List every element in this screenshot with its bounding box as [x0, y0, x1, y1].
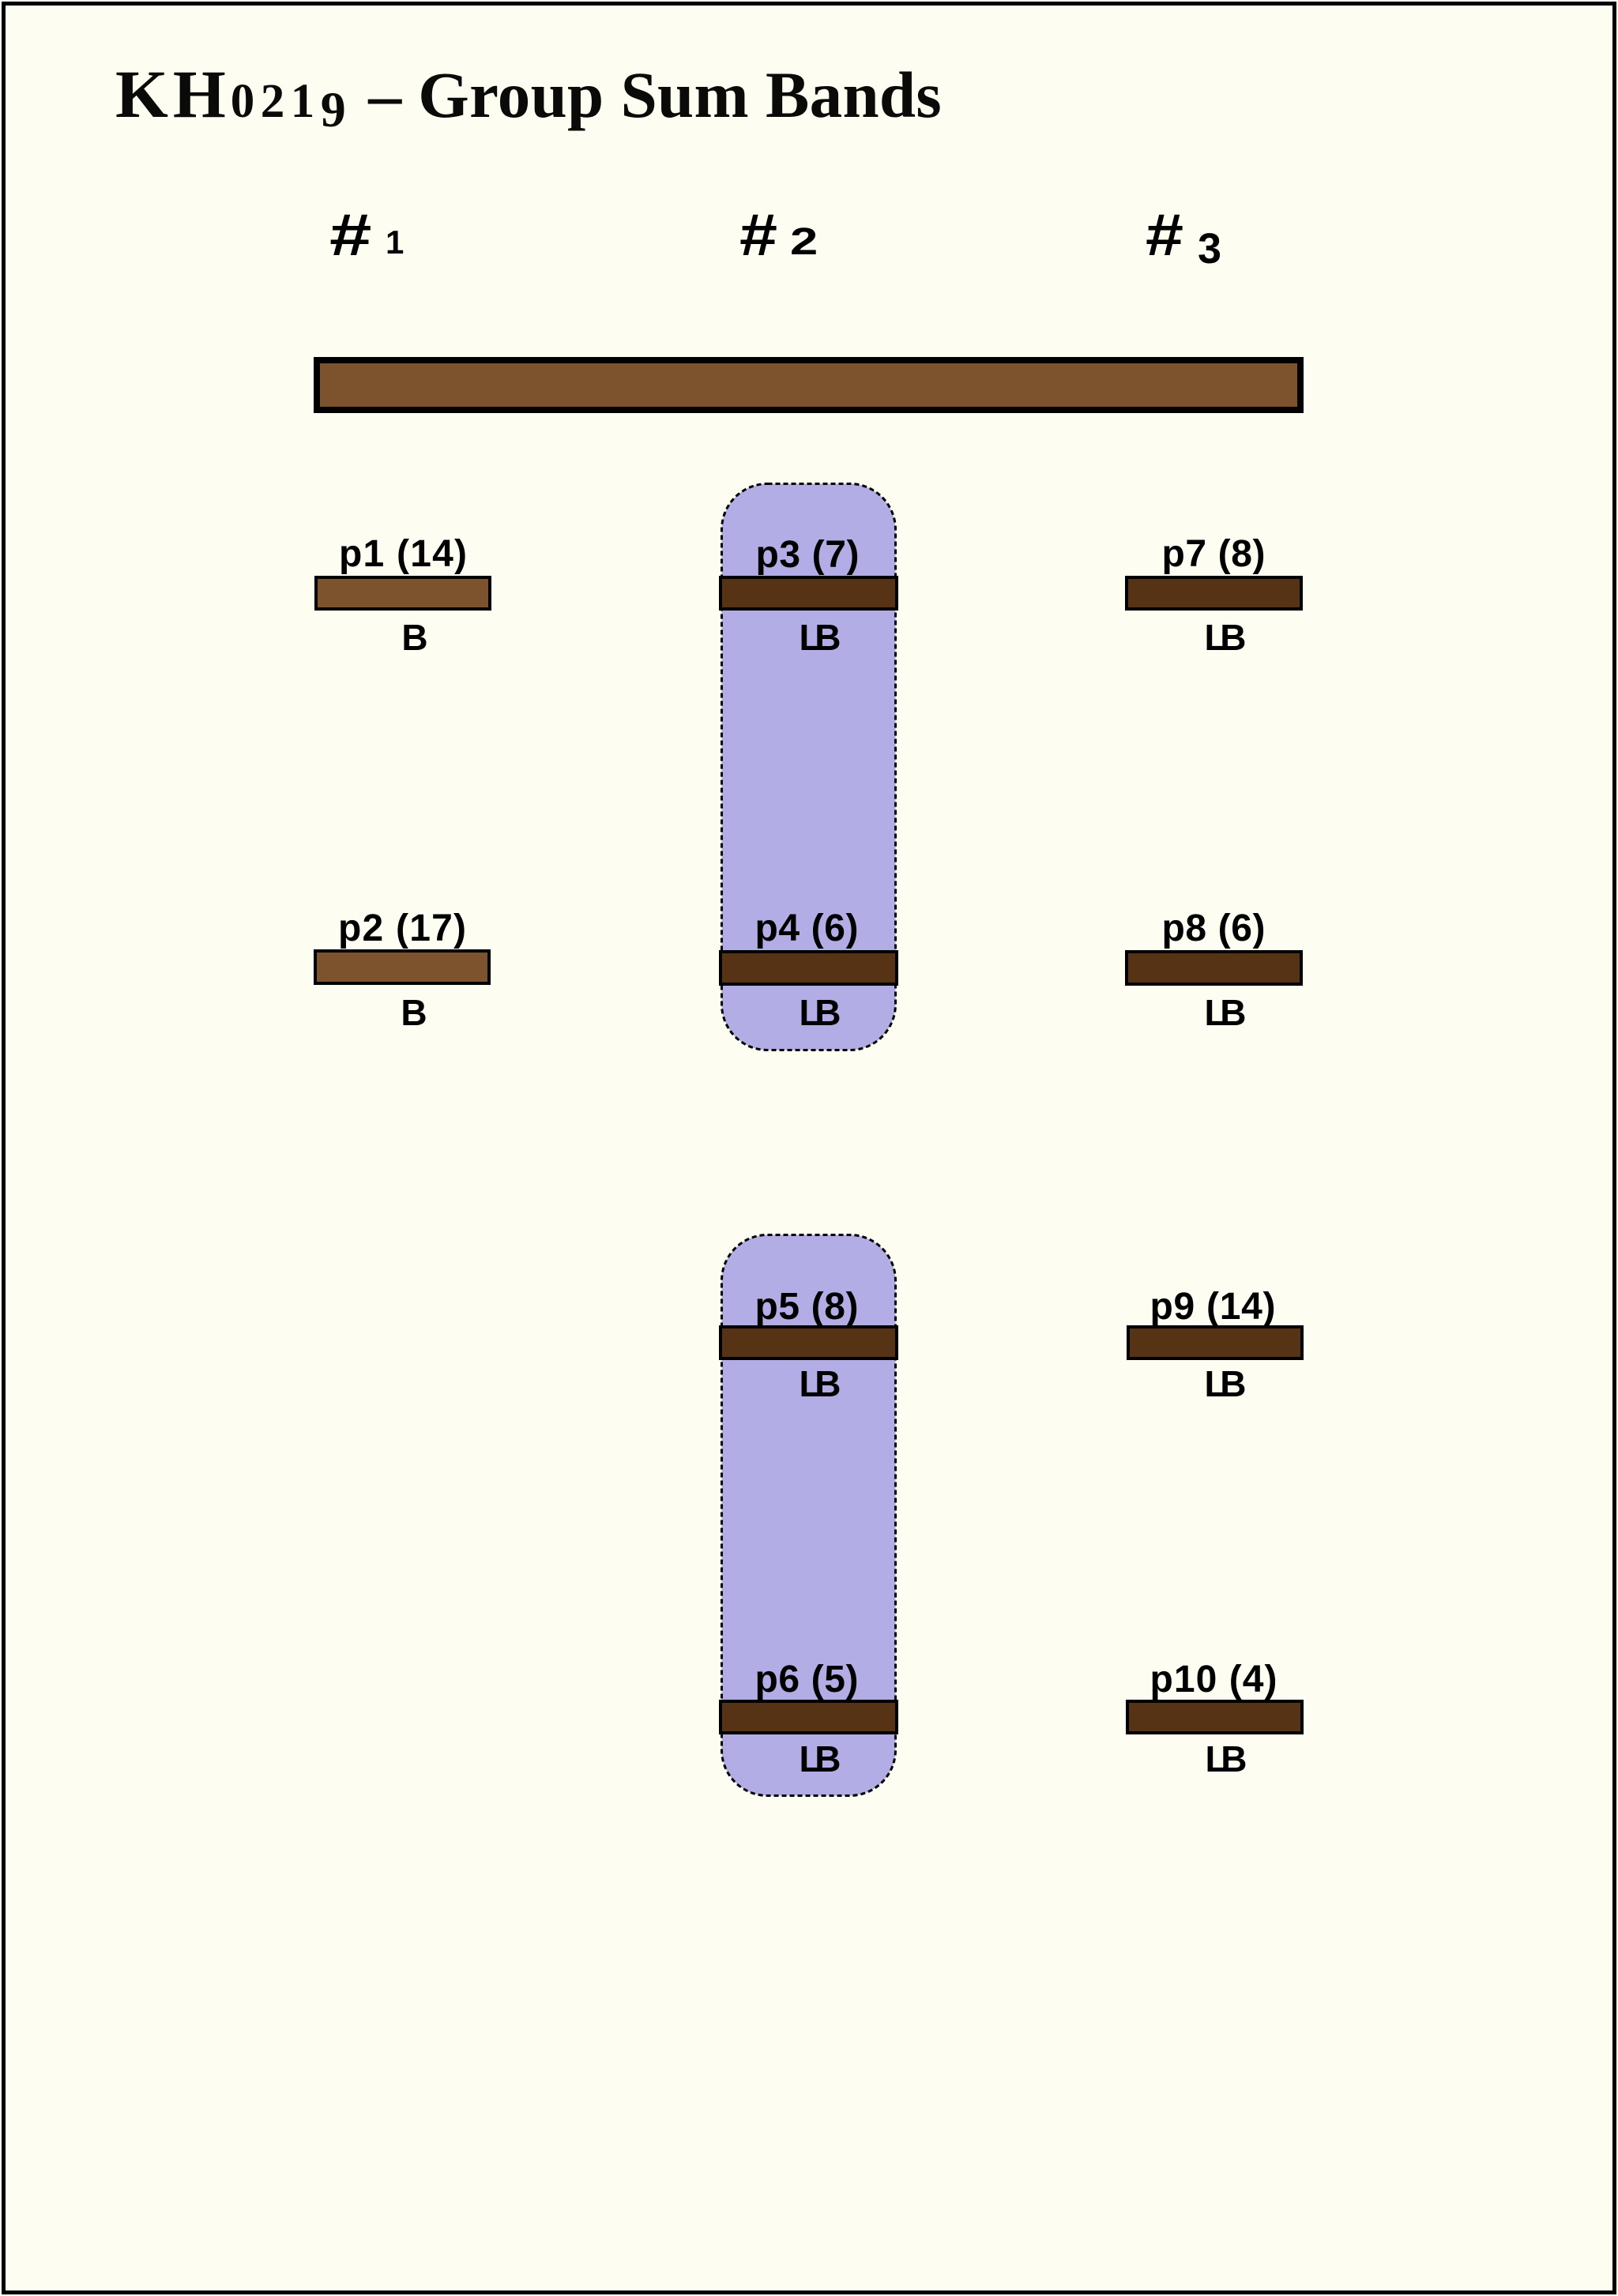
- svg-text:p8 (6): p8 (6): [1162, 908, 1266, 949]
- svg-text:p6 (5): p6 (5): [755, 1659, 859, 1700]
- svg-text:LB: LB: [1206, 1738, 1247, 1779]
- svg-text:B: B: [401, 992, 427, 1033]
- svg-text:p1 (14): p1 (14): [339, 533, 467, 575]
- svg-text:B: B: [401, 617, 427, 658]
- svg-text:p5 (8): p5 (8): [755, 1286, 859, 1328]
- svg-text:LB: LB: [800, 617, 841, 658]
- svg-text:LB: LB: [1205, 992, 1247, 1033]
- svg-text:#: #: [739, 202, 777, 269]
- svg-text:1: 1: [386, 224, 404, 261]
- svg-text:#: #: [1146, 202, 1183, 269]
- svg-text:p3 (7): p3 (7): [756, 534, 860, 576]
- svg-text:p9 (14): p9 (14): [1150, 1286, 1276, 1328]
- svg-text:p4 (6): p4 (6): [755, 908, 859, 949]
- svg-text:p7 (8): p7 (8): [1162, 533, 1266, 575]
- svg-text:LB: LB: [800, 1738, 841, 1779]
- svg-text:LB: LB: [1205, 617, 1247, 658]
- svg-text:#: #: [329, 202, 371, 269]
- svg-text:LB: LB: [800, 992, 841, 1033]
- svg-text:3: 3: [1198, 225, 1221, 272]
- svg-text:2: 2: [790, 220, 818, 262]
- svg-text:p2 (17): p2 (17): [338, 908, 466, 949]
- svg-text:LB: LB: [1205, 1363, 1247, 1404]
- svg-text:LB: LB: [800, 1363, 841, 1404]
- svg-text:p10 (4): p10 (4): [1150, 1659, 1277, 1700]
